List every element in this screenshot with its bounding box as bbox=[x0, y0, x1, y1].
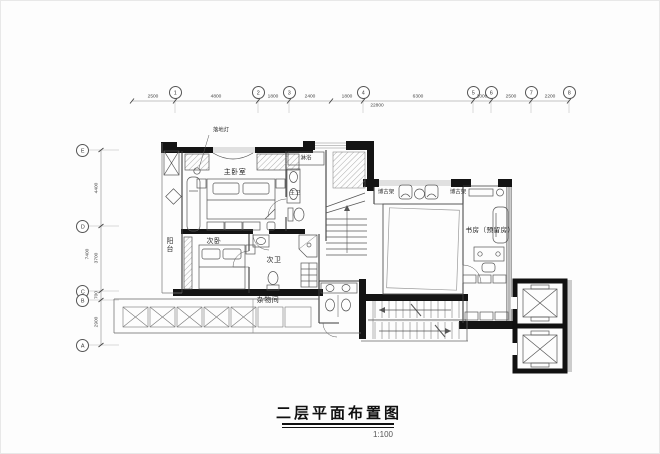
title-underline-thick bbox=[282, 423, 394, 425]
dim-top-5: 1800 bbox=[342, 93, 353, 98]
room-label-balcony: 阳台 bbox=[164, 237, 174, 253]
label-display-shelf-right: 博古架 bbox=[450, 188, 466, 195]
room-label-second-bedroom: 次卧 bbox=[207, 236, 222, 246]
dimension-lines bbox=[99, 99, 572, 348]
room-label-second-bath: 次卫 bbox=[267, 255, 282, 265]
grid-bubble-3: 3 bbox=[283, 86, 296, 99]
room-label-storage: 杂物间 bbox=[257, 295, 280, 305]
dim-top-8: 2500 bbox=[506, 93, 517, 98]
grid-bubble-1: 1 bbox=[169, 86, 182, 99]
grid-bubble-8: 8 bbox=[563, 86, 576, 99]
annotation-floor-lamp: 落地灯 bbox=[213, 126, 229, 133]
furniture bbox=[123, 135, 565, 371]
dim-left-2: 3700 bbox=[93, 253, 98, 264]
room-label-master-bath: 主卫 bbox=[290, 189, 301, 196]
grid-bubble-A: A bbox=[76, 339, 89, 352]
dim-top-7: 1000 bbox=[477, 93, 488, 98]
dim-top-3: 1800 bbox=[268, 93, 279, 98]
drawing-scale: 1:100 bbox=[353, 430, 393, 439]
dim-top-1: 2500 bbox=[148, 93, 159, 98]
dim-left-1: 4400 bbox=[93, 183, 98, 194]
dim-top-2: 4800 bbox=[211, 93, 222, 98]
grid-bubble-4: 4 bbox=[357, 86, 370, 99]
room-label-master-bedroom: 主卧室 bbox=[224, 167, 247, 177]
grid-lines bbox=[88, 98, 569, 346]
drawing-title: 二层平面布置图 bbox=[251, 402, 427, 423]
grid-bubble-B: B bbox=[76, 294, 89, 307]
label-display-shelf-left: 博古架 bbox=[378, 188, 394, 195]
floor-plan-drawing bbox=[1, 1, 660, 454]
dim-top-6: 6300 bbox=[413, 93, 424, 98]
floor-plan-sheet: 1 2 3 4 5 6 7 8 E D C B A 2500 4800 1800… bbox=[0, 0, 660, 454]
title-underline-thin bbox=[282, 427, 394, 428]
dim-top-9: 2200 bbox=[545, 93, 556, 98]
dim-left-4: 2900 bbox=[93, 317, 98, 328]
grid-bubble-E: E bbox=[76, 144, 89, 157]
dim-top-overall: 22800 bbox=[370, 102, 383, 107]
room-label-shower: 淋浴 bbox=[301, 154, 312, 161]
grid-bubble-D: D bbox=[76, 220, 89, 233]
room-label-study: 书房（预留房） bbox=[466, 224, 515, 234]
grid-bubble-7: 7 bbox=[525, 86, 538, 99]
dim-left-3: 700 bbox=[93, 291, 98, 299]
dim-left-overall: 7400 bbox=[84, 249, 89, 260]
dim-top-4: 2400 bbox=[305, 93, 316, 98]
grid-bubble-2: 2 bbox=[252, 86, 265, 99]
